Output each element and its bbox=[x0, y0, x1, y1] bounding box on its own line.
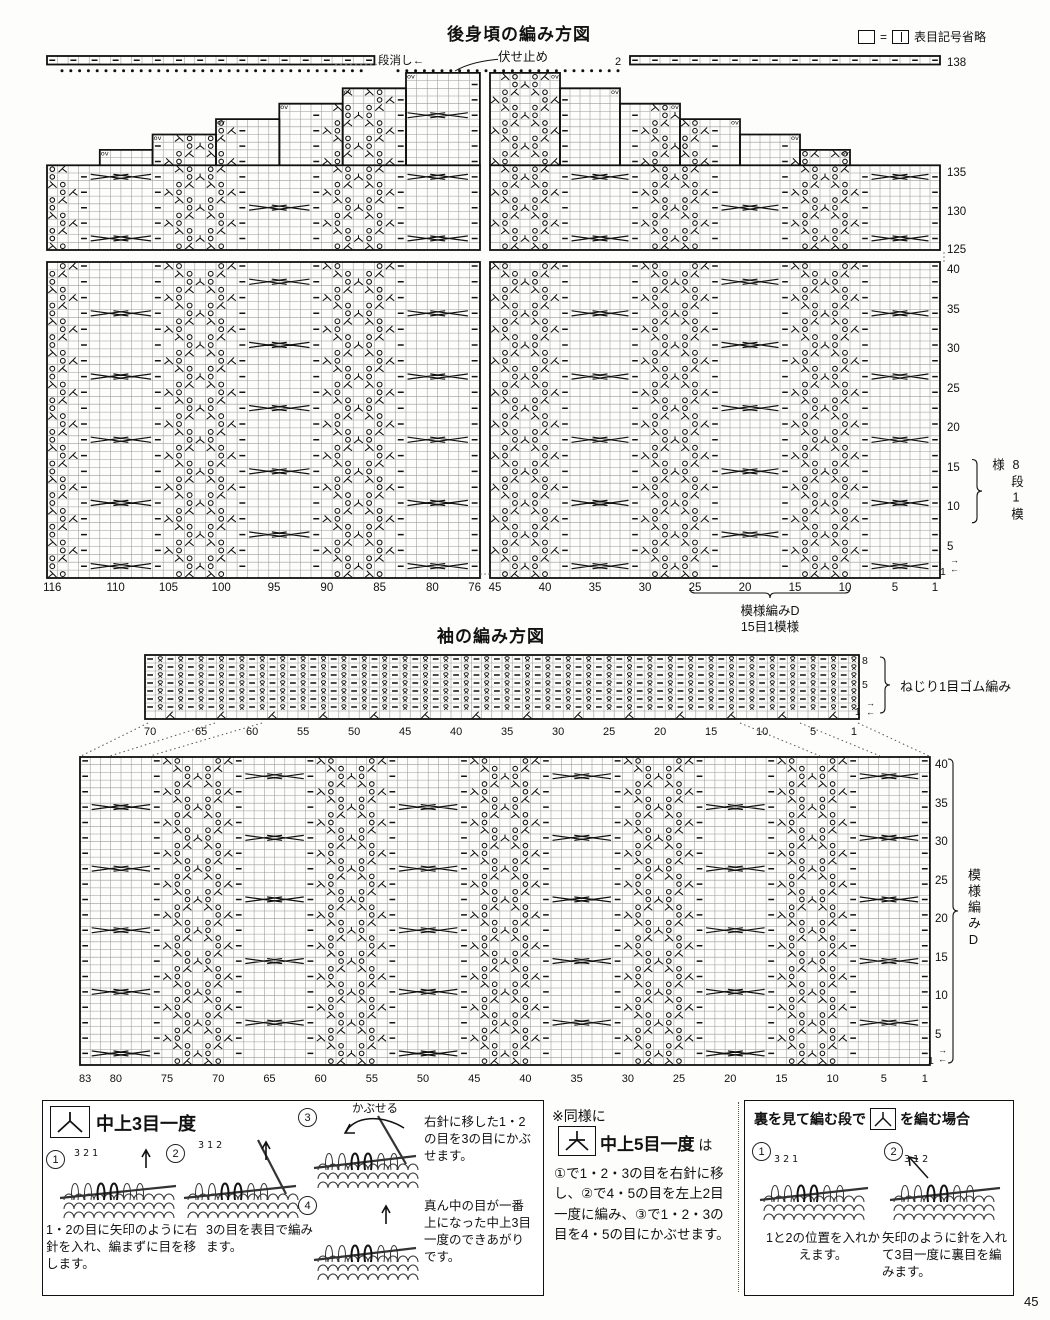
legend-text: 表目記号省略 bbox=[914, 28, 986, 45]
illustration-ws-step-1: 3 2 1 bbox=[758, 1150, 872, 1224]
col-label: 35 bbox=[571, 1073, 583, 1085]
step-1-caption: 1・2の目に矢印のように右針を入れ、編まずに目を移します。 bbox=[46, 1222, 204, 1273]
rib-col-label: 65 bbox=[195, 726, 207, 738]
back-chart-title: 後身頃の編み方図 bbox=[447, 20, 591, 45]
col-label: 105 bbox=[159, 582, 178, 594]
svg-text:ov: ov bbox=[154, 134, 162, 142]
row-label: 135 bbox=[947, 167, 966, 179]
rib-col-label: 45 bbox=[399, 726, 411, 738]
cdd5-title-bold: 中上5目一度 bbox=[600, 1135, 694, 1154]
knit-direction-arrows: →← bbox=[866, 699, 875, 716]
illustration-step-3 bbox=[312, 1112, 420, 1192]
row-label: 20 bbox=[935, 913, 948, 925]
col-label: 90 bbox=[320, 582, 333, 594]
row-label: 35 bbox=[935, 798, 948, 810]
col-label: 85 bbox=[373, 582, 386, 594]
row-label: 20 bbox=[947, 422, 960, 434]
note-body: ①で1・2・3の目を右針に移し、②で4・5の目を左上2目一度に編み、③で1・2・… bbox=[554, 1164, 736, 1245]
row-label-1: 1 bbox=[928, 1055, 934, 1067]
col-label: 110 bbox=[106, 582, 124, 594]
rib-col-label: 20 bbox=[654, 726, 666, 738]
dotted-divider bbox=[738, 1102, 739, 1292]
row-label-1: 1 bbox=[940, 566, 946, 578]
rib-col-label: 1 bbox=[851, 726, 857, 738]
col-label: 95 bbox=[268, 582, 281, 594]
svg-text:ov: ov bbox=[671, 103, 679, 111]
col-label: 55 bbox=[366, 1073, 378, 1085]
row-label: 40 bbox=[947, 264, 960, 276]
ws-step-2-caption: 矢印のように針を入れて3目一度に裏目を編みます。 bbox=[882, 1230, 1008, 1281]
svg-text:ov: ov bbox=[611, 88, 619, 96]
cdd5-title: 中上5目一度 は bbox=[600, 1130, 712, 1155]
row-label: 125 bbox=[947, 244, 966, 256]
rib-col-label: 15 bbox=[705, 726, 717, 738]
col-label: 35 bbox=[589, 582, 602, 594]
illustration-ws-step-2: 3 1 2 bbox=[888, 1150, 1004, 1224]
col-label: 10 bbox=[839, 582, 852, 594]
dan-keshi-label: 段消し← bbox=[378, 52, 424, 68]
col-label: 40 bbox=[539, 582, 552, 594]
col-label: 20 bbox=[724, 1073, 736, 1085]
col-label: 60 bbox=[315, 1073, 327, 1085]
cdd5-symbol-icon bbox=[559, 1127, 595, 1155]
col-label: 45 bbox=[468, 1073, 480, 1085]
page-number: 45 bbox=[1024, 1294, 1038, 1309]
svg-text:3 2 1: 3 2 1 bbox=[774, 1154, 798, 1165]
svg-text:ov: ov bbox=[407, 72, 415, 80]
row-repeat-bracket-label: 8段1模様 bbox=[988, 458, 1026, 538]
illustration-step-4 bbox=[312, 1200, 420, 1284]
rib-col-label: 40 bbox=[450, 726, 462, 738]
col-label: 20 bbox=[739, 582, 752, 594]
illustration-step-2: 3 1 2 bbox=[182, 1136, 300, 1222]
cdd-symbol-box bbox=[50, 1106, 90, 1138]
svg-text:ov: ov bbox=[731, 119, 739, 127]
stitch-legend: = 表目記号省略 bbox=[858, 28, 986, 45]
col-label: 116 bbox=[43, 582, 61, 594]
rib-col-label: 70 bbox=[144, 726, 156, 738]
col-label: 10 bbox=[827, 1073, 839, 1085]
step-4-caption: 真ん中の目が一番上になった中上3目一度のできあがりです。 bbox=[424, 1198, 536, 1266]
step-2-caption: 3の目を表目で編みます。 bbox=[206, 1222, 324, 1256]
cdd-title: 中上3目一度 bbox=[96, 1110, 196, 1136]
row-label: 25 bbox=[935, 875, 948, 887]
rib-col-label: 30 bbox=[552, 726, 564, 738]
ws-cdd-symbol-icon bbox=[871, 1109, 895, 1129]
col-label: 83 bbox=[79, 1073, 91, 1085]
rib-col-label: 60 bbox=[246, 726, 258, 738]
col-label: 50 bbox=[417, 1073, 429, 1085]
row-label: 5 bbox=[947, 541, 953, 553]
col-label: 80 bbox=[110, 1073, 122, 1085]
rib-col-label: 35 bbox=[501, 726, 513, 738]
ws-title-post: を編む場合 bbox=[900, 1109, 970, 1129]
rib-col-label: 10 bbox=[756, 726, 768, 738]
svg-text:ov: ov bbox=[344, 88, 352, 96]
motif-repeat-label: 15目1模様 bbox=[741, 616, 799, 635]
ws-step-1-caption: 1と2の位置を入れかえます。 bbox=[764, 1230, 882, 1264]
svg-text:ov: ov bbox=[101, 149, 109, 157]
col-label: 15 bbox=[789, 582, 802, 594]
rib-row-label: 8 bbox=[862, 655, 868, 667]
col-label: 5 bbox=[881, 1073, 887, 1085]
col-label: 15 bbox=[775, 1073, 787, 1085]
col-label: 1 bbox=[932, 582, 938, 594]
illustration-step-1: 3 2 1 bbox=[58, 1144, 180, 1222]
svg-text:ov: ov bbox=[551, 72, 559, 80]
col-label: 100 bbox=[212, 582, 231, 594]
col-label: 70 bbox=[212, 1073, 224, 1085]
rib-row-label-1: 1 bbox=[855, 707, 861, 718]
cdd5-title-wa: は bbox=[694, 1137, 712, 1153]
knit-direction-arrows: →← bbox=[950, 556, 959, 573]
row-label-138: 138 bbox=[947, 57, 966, 69]
row-label: 10 bbox=[935, 990, 948, 1002]
col-label: 25 bbox=[673, 1073, 685, 1085]
cdd5-symbol-box bbox=[558, 1126, 596, 1156]
svg-text:ov: ov bbox=[791, 134, 799, 142]
svg-text:ov: ov bbox=[841, 149, 849, 157]
rib-row-label: 5 bbox=[862, 679, 868, 691]
col-label: 30 bbox=[639, 582, 652, 594]
ws-title-pre: 裏を見て編む段で bbox=[754, 1109, 866, 1129]
legend-equals: = bbox=[880, 30, 887, 44]
sleeve-chart-title: 袖の編み方図 bbox=[437, 622, 545, 647]
row-label: 15 bbox=[935, 952, 948, 964]
col-label: 25 bbox=[689, 582, 702, 594]
row-label: 5 bbox=[935, 1029, 941, 1041]
rib-col-label: 50 bbox=[348, 726, 360, 738]
col-label: 65 bbox=[263, 1073, 275, 1085]
svg-text:3 1 2: 3 1 2 bbox=[904, 1154, 928, 1165]
knit-square-icon bbox=[892, 30, 909, 44]
row-label: 15 bbox=[947, 462, 960, 474]
col-label: 40 bbox=[519, 1073, 531, 1085]
rib-col-label: 55 bbox=[297, 726, 309, 738]
col-label: 5 bbox=[892, 582, 898, 594]
col-label: 1 bbox=[922, 1073, 928, 1085]
row-label: 30 bbox=[947, 343, 960, 355]
col-label: 80 bbox=[426, 582, 439, 594]
rib-col-label: 25 bbox=[603, 726, 615, 738]
sleeve-motif-label: 模様編みD bbox=[964, 868, 983, 998]
row-label: 40 bbox=[935, 759, 948, 771]
svg-text:3 2 1: 3 2 1 bbox=[74, 1148, 98, 1159]
col-label: 45 bbox=[489, 582, 502, 594]
svg-text:ov: ov bbox=[217, 119, 225, 127]
knit-direction-arrows: →← bbox=[938, 1046, 947, 1063]
row-label: 25 bbox=[947, 383, 960, 395]
ws-cdd-symbol-box bbox=[870, 1108, 896, 1130]
row-label: 35 bbox=[947, 304, 960, 316]
row-label: 130 bbox=[947, 206, 966, 218]
fuse-dome-label: 伏せ止め bbox=[498, 46, 548, 65]
svg-text:ov: ov bbox=[280, 103, 288, 111]
rib-col-label: 5 bbox=[810, 726, 816, 738]
col-label: 75 bbox=[161, 1073, 173, 1085]
rib-label: ねじり1目ゴム編み bbox=[900, 676, 1011, 695]
note-prefix: ※同様に bbox=[552, 1106, 606, 1126]
bind-count-label: 2 bbox=[615, 56, 621, 68]
step-3-caption: 右針に移した1・2の目を3の目にかぶせます。 bbox=[424, 1114, 536, 1165]
row-label: 10 bbox=[947, 501, 960, 513]
knitting-pattern-page: ovovovovovovovovovovovov 後身頃の編み方図 = 表目記号… bbox=[0, 0, 1050, 1320]
empty-square-icon bbox=[858, 30, 875, 44]
cdd-symbol-icon bbox=[51, 1107, 89, 1137]
row-label: 30 bbox=[935, 836, 948, 848]
svg-text:3 1 2: 3 1 2 bbox=[198, 1140, 222, 1151]
col-label: 30 bbox=[622, 1073, 634, 1085]
ws-box-title: 裏を見て編む段で を編む場合 bbox=[754, 1108, 970, 1130]
col-label: 76 bbox=[468, 582, 481, 594]
